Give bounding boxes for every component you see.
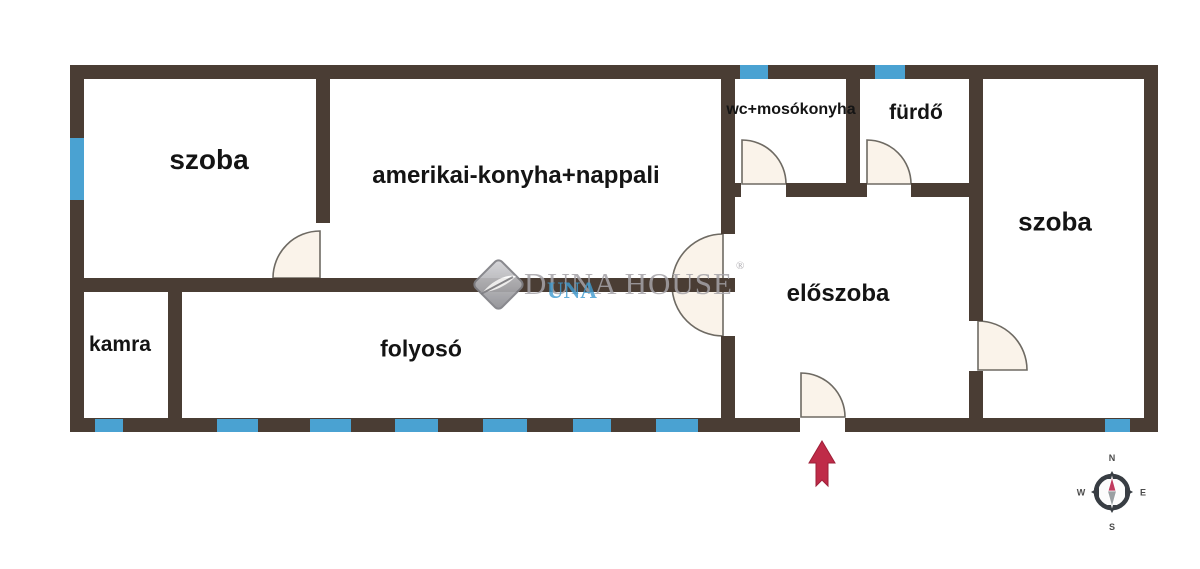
watermark-diamond-logo-icon <box>472 258 524 310</box>
watermark-accent-text: UNA <box>547 278 597 304</box>
room-label-nappali: amerikai-konyha+nappali <box>372 162 659 190</box>
room-label-szoba-right: szoba <box>1018 207 1092 238</box>
entrance-arrow-icon <box>809 441 835 486</box>
room-label-kamra: kamra <box>89 333 151 357</box>
compass-rose-icon: NESW <box>1077 453 1146 532</box>
compass-n-label: N <box>1109 453 1116 463</box>
entrance-arrow-shape <box>809 441 835 486</box>
compass-e-label: E <box>1140 488 1146 498</box>
compass-w-label: W <box>1077 488 1086 498</box>
room-label-folyoso: folyosó <box>380 336 462 363</box>
room-label-wc-mosokonyha: wc+mosókonyha <box>726 101 855 119</box>
room-label-furdo: fürdő <box>889 101 943 125</box>
registered-mark: ® <box>736 260 744 272</box>
room-label-szoba-left: szoba <box>169 144 248 176</box>
room-label-eloszoba: előszoba <box>787 280 890 308</box>
compass-s-label: S <box>1109 522 1115 532</box>
floor-plan-canvas: NESW DUNA HOUSE UNA ® szobaamerikai-kony… <box>0 0 1200 569</box>
